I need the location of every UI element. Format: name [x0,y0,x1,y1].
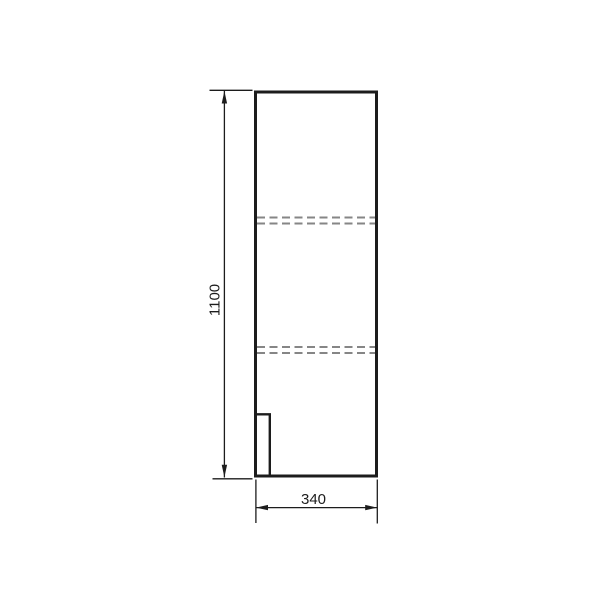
dimension-lines-group [210,90,378,523]
arrow-left-icon [256,505,268,510]
height-dimension-label: 1100 [207,284,224,316]
dimension-arrows-group [222,91,378,510]
drawing-canvas: 1100 340 [0,0,600,600]
width-dimension-label: 340 [301,491,326,508]
outline-group [254,92,377,476]
cabinet-body-outline [256,92,377,476]
technical-drawing: 1100 340 [0,0,600,600]
arrow-up-icon [222,91,227,104]
hidden-shelf-lines-group [257,218,375,354]
arrow-right-icon [365,505,377,510]
arrow-down-icon [222,465,227,478]
